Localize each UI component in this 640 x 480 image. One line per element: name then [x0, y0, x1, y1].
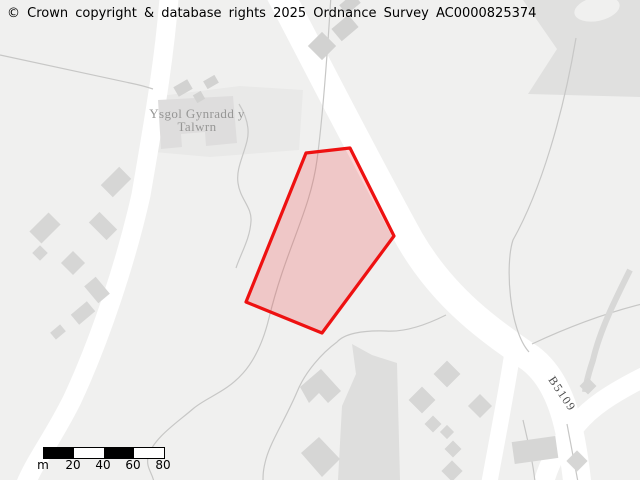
building [32, 245, 48, 261]
farmyard-area [338, 344, 400, 480]
building [29, 212, 60, 243]
scale-unit-label: m [28, 458, 58, 472]
farm-building [301, 437, 340, 477]
building [425, 416, 442, 433]
boundary-line [0, 55, 153, 89]
map-image: Ysgol Gynradd y Talwrn B5109 [0, 0, 640, 480]
scale-bar-segment [74, 448, 104, 458]
scale-tick-label: 80 [148, 458, 178, 472]
scale-bar-segment [104, 448, 134, 458]
building [441, 460, 462, 480]
building [50, 324, 66, 339]
building [580, 378, 597, 395]
road-south-branch [488, 342, 514, 480]
building [434, 361, 461, 388]
road-west-lane [24, 0, 170, 480]
building [71, 301, 95, 324]
scale-tick-label: 20 [58, 458, 88, 472]
boundary-line [532, 304, 640, 344]
building [203, 75, 219, 89]
building [409, 387, 436, 414]
building [440, 425, 454, 439]
building [468, 394, 492, 418]
building [89, 212, 117, 240]
track [585, 270, 630, 392]
building [445, 441, 462, 458]
building [101, 167, 131, 197]
scale-bar-segment [134, 448, 164, 458]
copyright-notice: © Crown copyright & database rights 2025… [7, 6, 536, 21]
scale-bar-segment [44, 448, 74, 458]
place-label-line2: Talwrn [177, 119, 216, 134]
scale-tick-label: 40 [88, 458, 118, 472]
building [61, 251, 85, 275]
map-view: Ysgol Gynradd y Talwrn B5109 © Crown cop… [0, 0, 640, 480]
scale-tick-label: 60 [118, 458, 148, 472]
